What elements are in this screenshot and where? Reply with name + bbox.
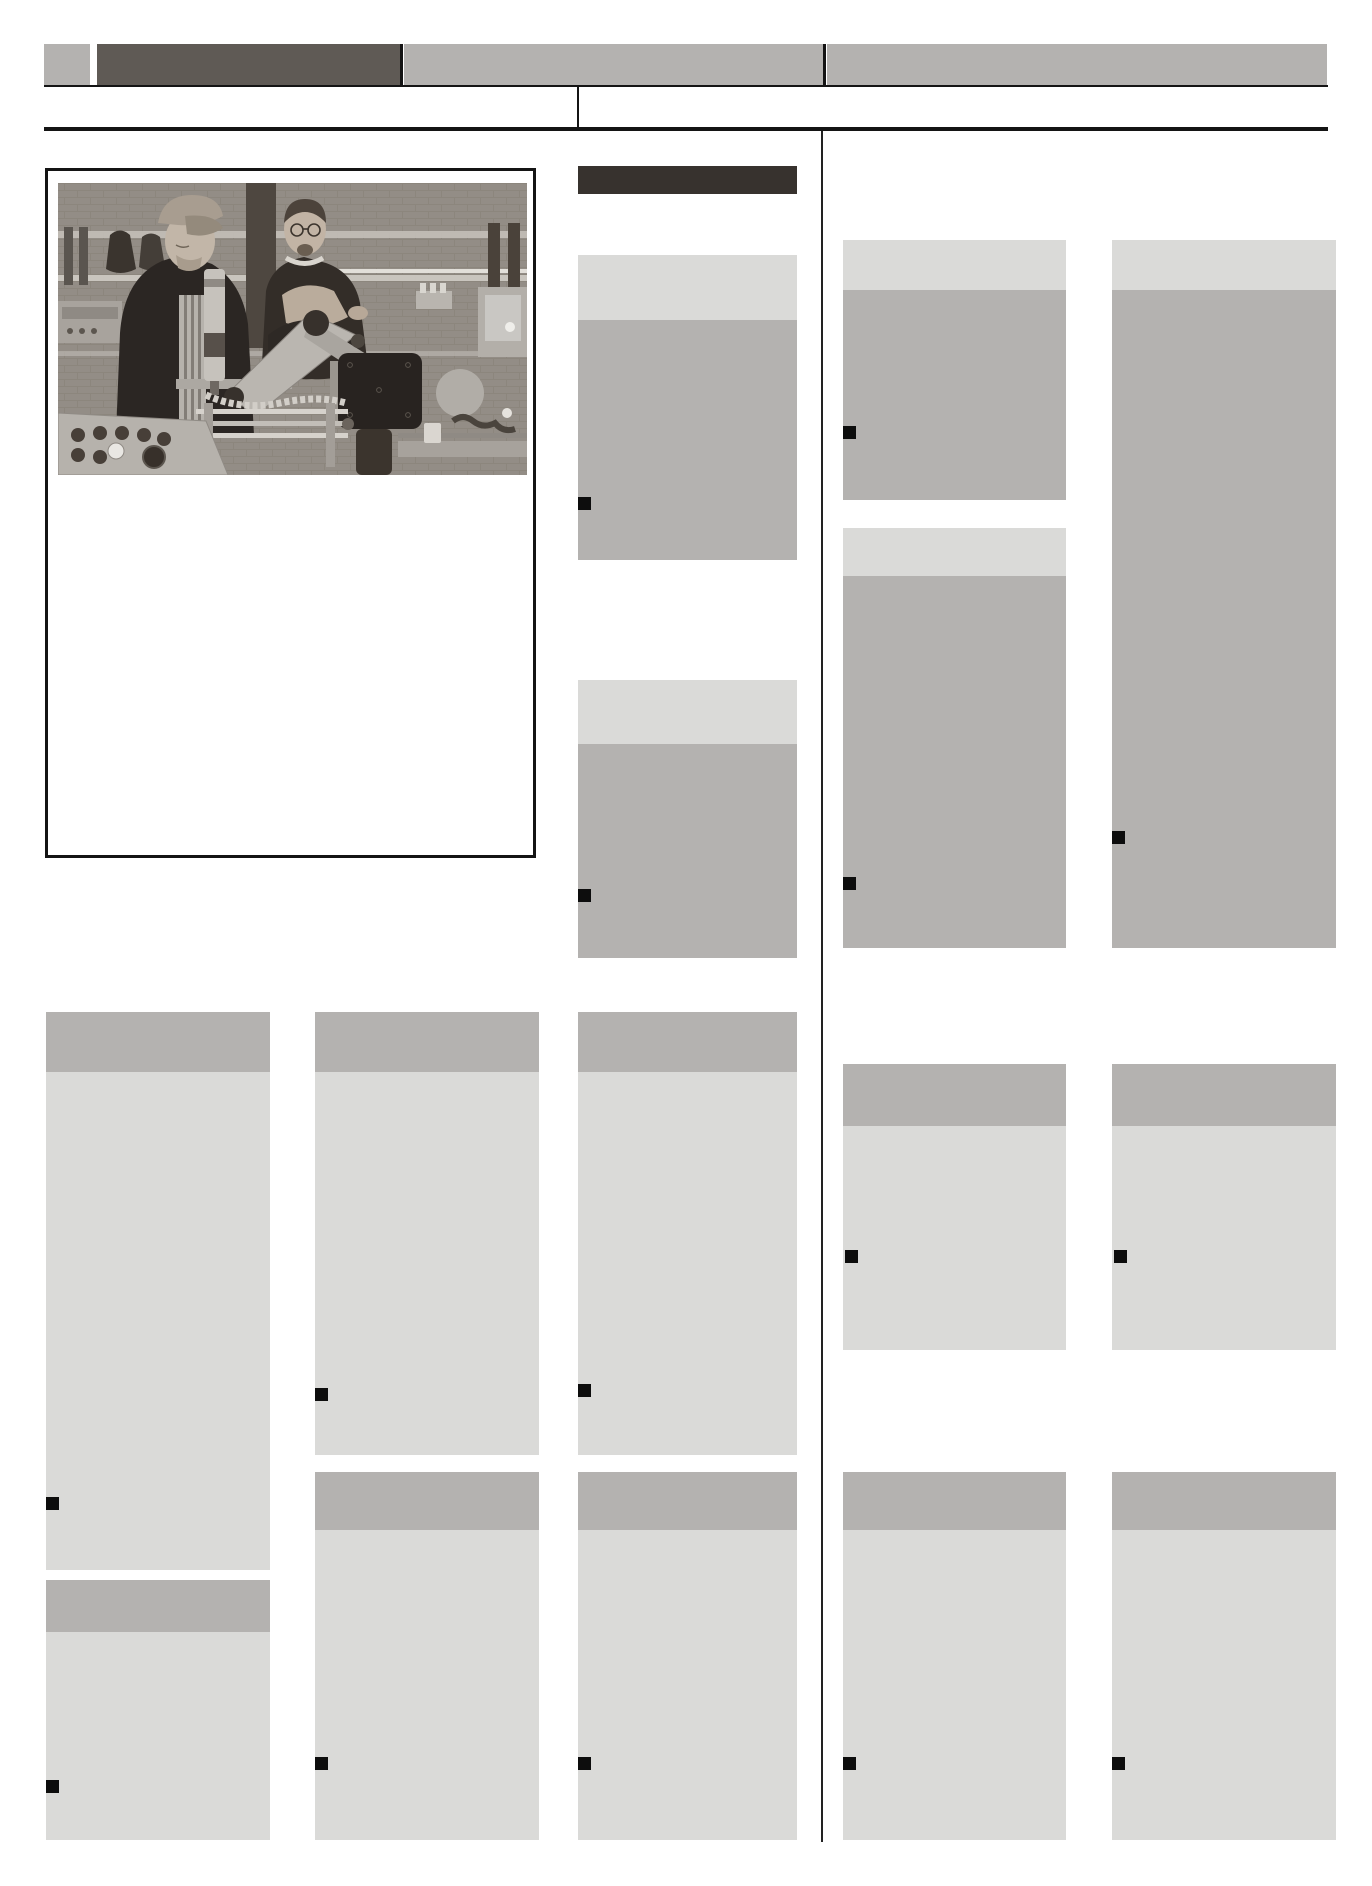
article-right-col1-middle-end-marker: [845, 1250, 858, 1263]
article-right-col2-bottom-kicker: [1112, 1472, 1336, 1530]
article-left-col3-bottom-kicker: [578, 1472, 797, 1530]
article-left-col1-main-end-marker: [46, 1497, 59, 1510]
page: [0, 0, 1372, 1886]
article-left-col2-bottom-end-marker: [315, 1757, 328, 1770]
nameplate-gray-2: [827, 44, 1327, 86]
article-right-col1-second-end-marker: [843, 877, 856, 890]
photo-caption-area: [48, 483, 533, 855]
article-right-col2-tall-body: [1112, 290, 1336, 948]
nameplate-gray-1: [404, 44, 824, 86]
article-right-col2-tall-kicker: [1112, 240, 1336, 290]
masthead-rule-thin: [44, 85, 1328, 87]
article-right-col2-bottom-end-marker: [1112, 1757, 1125, 1770]
article-middle-second-end-marker: [578, 889, 591, 902]
article-middle-top-kicker: [578, 255, 797, 320]
article-left-col1-main-kicker: [46, 1012, 270, 1072]
article-left-col3-bottom-end-marker: [578, 1757, 591, 1770]
nameplate-dark: [97, 44, 400, 86]
article-right-col1-middle-kicker: [843, 1064, 1066, 1126]
article-left-col3-main-end-marker: [578, 1384, 591, 1397]
article-right-col1-bottom-body: [843, 1530, 1066, 1840]
article-right-col1-top-body: [843, 290, 1066, 500]
article-right-col2-middle-end-marker: [1114, 1250, 1127, 1263]
article-right-col2-middle-body: [1112, 1126, 1336, 1350]
article-left-col1-bottom-end-marker: [46, 1780, 59, 1793]
workshop-photo: [58, 183, 527, 475]
nameplate-separator-2: [823, 44, 826, 86]
article-right-col1-middle-body: [843, 1126, 1066, 1350]
article-right-col1-bottom-kicker: [843, 1472, 1066, 1530]
article-right-col1-top-kicker: [843, 240, 1066, 290]
article-left-col1-bottom-body: [46, 1632, 270, 1840]
article-middle-top-body: [578, 320, 797, 560]
article-right-col1-top-end-marker: [843, 426, 856, 439]
article-left-col2-main-body: [315, 1072, 539, 1455]
article-right-col2-tall-end-marker: [1112, 831, 1125, 844]
article-left-col1-bottom-kicker: [46, 1580, 270, 1632]
article-left-col2-bottom-kicker: [315, 1472, 539, 1530]
nameplate-square: [44, 44, 90, 86]
article-right-col2-middle-kicker: [1112, 1064, 1336, 1126]
article-right-col1-second-kicker: [843, 528, 1066, 576]
article-middle-top-end-marker: [578, 497, 591, 510]
article-left-col2-main-end-marker: [315, 1388, 328, 1401]
article-left-col3-main-body: [578, 1072, 797, 1455]
masthead-rule-thick: [44, 127, 1328, 131]
article-left-col2-bottom-body: [315, 1530, 539, 1840]
column-divider: [821, 131, 823, 1842]
dateline-tick: [577, 87, 579, 127]
article-right-col1-bottom-end-marker: [843, 1757, 856, 1770]
photo-box: [45, 168, 536, 858]
article-left-col3-main-kicker: [578, 1012, 797, 1072]
article-middle-second-kicker: [578, 680, 797, 744]
article-right-col1-second-body: [843, 576, 1066, 948]
article-middle-second-body: [578, 744, 797, 958]
article-left-col1-main-body: [46, 1072, 270, 1570]
article-left-col3-bottom-body: [578, 1530, 797, 1840]
section-headline-bar: [578, 166, 797, 194]
article-right-col2-bottom-body: [1112, 1530, 1336, 1840]
article-left-col2-main-kicker: [315, 1012, 539, 1072]
nameplate-separator-1: [400, 44, 403, 86]
